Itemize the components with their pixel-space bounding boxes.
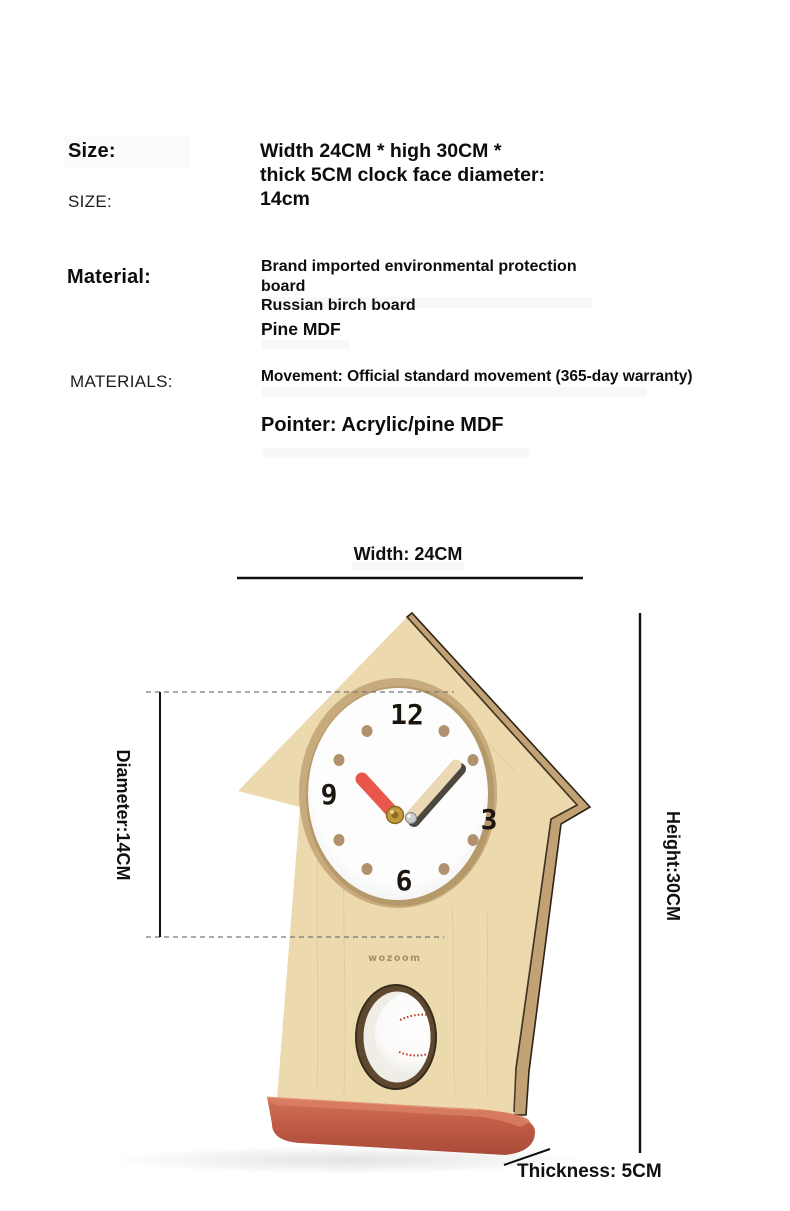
numeral-6: 6 <box>396 864 413 897</box>
silver-pivot <box>406 813 417 824</box>
numeral-12: 12 <box>390 698 424 731</box>
width-dimension-label: Width: 24CM <box>354 544 463 564</box>
product-photo: 12 3 6 9 wozoom <box>0 0 790 1211</box>
product-spec-page: Size: SIZE: Width 24CM * high 30CM * thi… <box>0 0 790 1211</box>
height-dimension-label: Height:30CM <box>663 811 683 921</box>
numeral-3: 3 <box>481 803 498 836</box>
numeral-9: 9 <box>321 778 338 811</box>
brand-logo: wozoom <box>368 953 421 964</box>
diameter-dimension-label: Diameter:14CM <box>113 749 133 880</box>
gold-cap-highlight <box>390 810 394 814</box>
silver-pivot-highlight <box>407 814 411 818</box>
thickness-dimension-label: Thickness: 5CM <box>517 1161 662 1182</box>
